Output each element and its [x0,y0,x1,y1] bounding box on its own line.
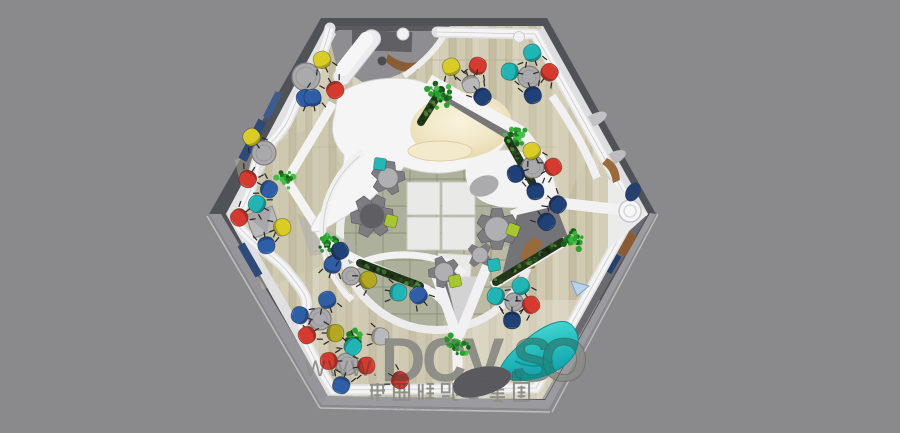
svg-text:WWW.: WWW. [305,356,381,381]
svg-text:DESIGN CREATED VALUE CREATIVE: DESIGN CREATED VALUE CREATIVE GROUP [368,402,546,412]
svg-text:.SO: .SO [508,326,588,394]
